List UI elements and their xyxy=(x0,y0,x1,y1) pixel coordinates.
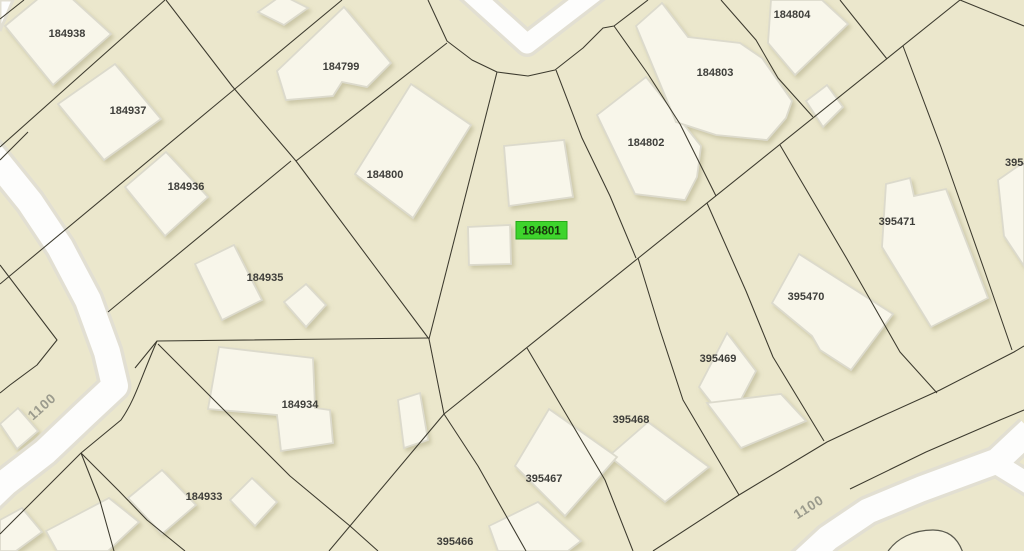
svg-text:395467: 395467 xyxy=(526,473,563,485)
svg-text:395466: 395466 xyxy=(437,536,474,548)
svg-text:395470: 395470 xyxy=(788,291,825,303)
svg-text:184937: 184937 xyxy=(110,105,147,117)
svg-text:184803: 184803 xyxy=(697,67,734,79)
svg-text:184935: 184935 xyxy=(247,272,284,284)
svg-text:184938: 184938 xyxy=(49,28,86,40)
svg-text:395468: 395468 xyxy=(613,414,650,426)
svg-text:184802: 184802 xyxy=(628,137,665,149)
svg-text:184800: 184800 xyxy=(367,169,404,181)
svg-text:184799: 184799 xyxy=(323,61,360,73)
svg-text:184936: 184936 xyxy=(168,181,205,193)
svg-text:39547: 39547 xyxy=(1005,157,1024,169)
svg-text:184804: 184804 xyxy=(774,9,812,21)
svg-text:395471: 395471 xyxy=(879,216,916,228)
svg-text:395469: 395469 xyxy=(700,353,737,365)
svg-text:184801: 184801 xyxy=(522,226,561,238)
svg-text:184933: 184933 xyxy=(186,491,223,503)
svg-text:184934: 184934 xyxy=(282,399,320,411)
